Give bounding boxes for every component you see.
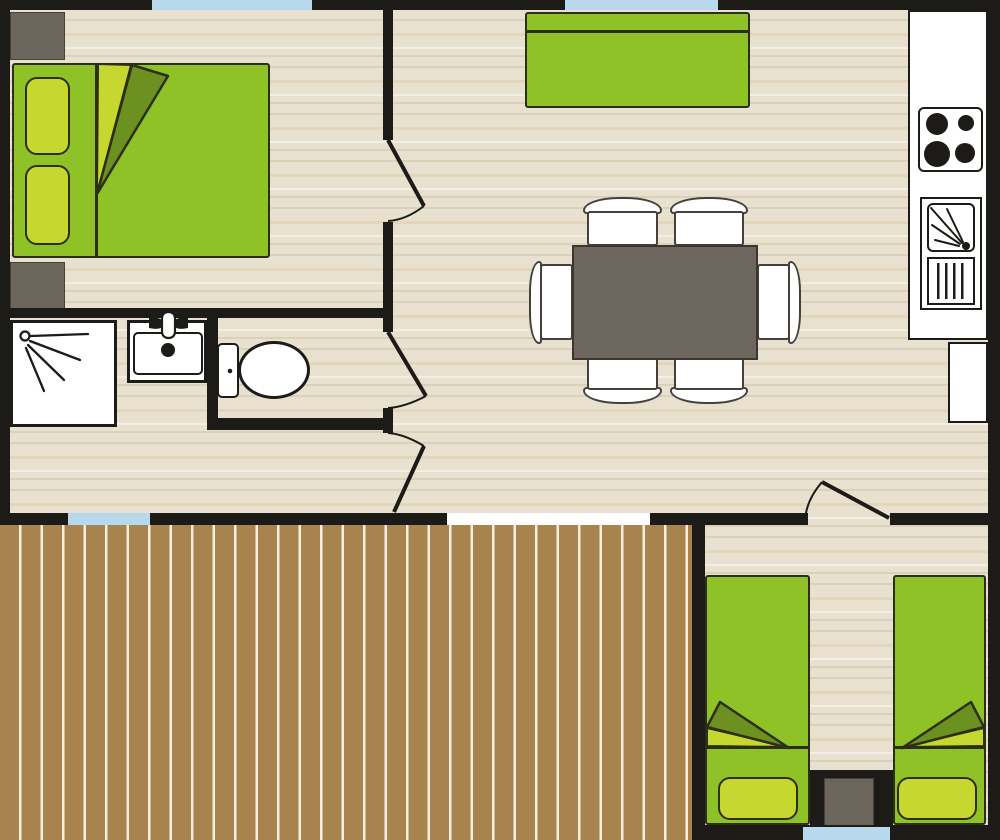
floor-plan	[0, 0, 1000, 840]
door-arc-twin	[806, 482, 822, 513]
shower-spray-icon	[26, 334, 88, 391]
lineart-overlay	[0, 0, 1000, 840]
door-arc-bathroom	[388, 433, 424, 446]
kitchen-sink-spray-icon	[931, 208, 963, 246]
basin-drain-icon	[161, 343, 175, 357]
kitchen-sink-drain-icon	[962, 242, 970, 250]
shower-head-icon	[21, 332, 30, 341]
door-leaf-master	[388, 140, 424, 206]
door-arc-wc	[388, 396, 426, 408]
door-leaf-wc	[388, 332, 426, 396]
door-arc-master	[388, 206, 424, 221]
door-leaf-twin	[822, 482, 889, 518]
toilet-flush-dot	[228, 369, 233, 374]
door-leaf-bathroom	[394, 446, 424, 512]
faucet-icon	[162, 312, 175, 338]
